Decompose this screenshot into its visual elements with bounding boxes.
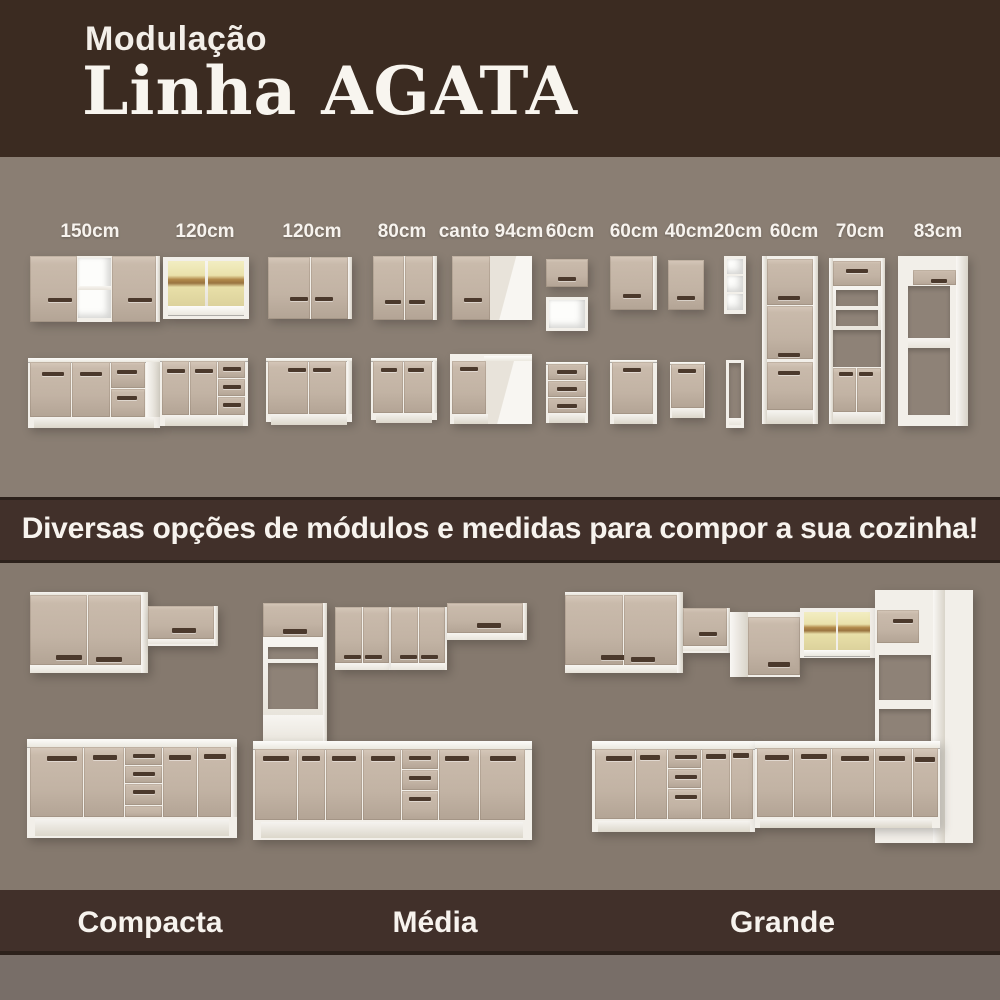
cabinet-door — [767, 306, 813, 359]
cabinet-bottom — [447, 633, 523, 640]
cabinet-door — [373, 256, 404, 320]
media-tall-tower — [263, 603, 327, 745]
module-size-label: 120cm — [155, 221, 255, 243]
drawer-front — [402, 770, 438, 790]
cabinet-bottom-shelf — [168, 306, 244, 315]
cabinet-bottom-shelf — [804, 650, 870, 656]
door-handle — [445, 756, 469, 761]
plinth — [454, 414, 488, 424]
wall-niche-60 — [546, 297, 588, 331]
media-base-counter — [253, 741, 532, 840]
open-bay — [908, 348, 950, 415]
door-handle — [290, 297, 308, 301]
door-handle — [706, 754, 726, 759]
side-panel — [433, 361, 437, 413]
door-handle — [601, 655, 625, 660]
drawer-handle — [557, 387, 577, 391]
cabinet-door — [683, 608, 727, 646]
door-handle — [778, 353, 800, 357]
door-handle — [56, 655, 82, 660]
wall-cabinet-flip-60 — [546, 259, 588, 287]
grande-wall-cabinet-step — [683, 608, 730, 653]
cabinet-door — [268, 257, 310, 319]
side-panel — [523, 603, 527, 640]
drawer-front — [402, 791, 438, 820]
drawer-handle — [557, 370, 577, 374]
cabinet-bottom — [148, 639, 214, 644]
door-handle — [385, 300, 401, 304]
door-handle — [778, 296, 800, 300]
drawer-handle — [133, 772, 155, 776]
door-handle — [169, 755, 191, 760]
kitchen-label-compacta: Compacta — [70, 906, 230, 940]
door-handle — [733, 753, 749, 758]
side-panel — [881, 258, 885, 424]
glass-door — [838, 612, 870, 650]
door-handle — [699, 632, 717, 636]
door-handle — [204, 754, 226, 759]
cabinet-door — [405, 256, 433, 320]
door-handle — [477, 623, 501, 628]
door-handle — [421, 655, 438, 659]
drawer-front — [125, 784, 162, 805]
side-panel — [323, 603, 327, 745]
door-handle — [371, 756, 395, 761]
cabinet-door — [30, 362, 71, 417]
base-cabinet-40 — [670, 362, 705, 418]
cabinet-door — [610, 256, 653, 310]
plinth — [614, 414, 653, 424]
oven-niche — [833, 330, 881, 367]
door-handle — [623, 294, 641, 298]
grande-base-counter-left — [592, 741, 755, 832]
grande-base-counter-right — [755, 741, 940, 828]
open-bay — [908, 286, 950, 338]
door-handle — [460, 367, 478, 371]
module-size-label: 150cm — [40, 221, 140, 243]
wall-cabinet-glass-120 — [163, 257, 249, 319]
corner-panel — [486, 361, 532, 424]
door-handle — [765, 755, 789, 760]
door-handle — [846, 269, 868, 273]
drawer-handle — [117, 396, 137, 400]
drawer-front — [668, 789, 701, 819]
drawer-handle — [675, 795, 697, 799]
wall-cabinet-120 — [268, 257, 352, 319]
oven-niche — [268, 663, 318, 709]
open-niche — [727, 276, 743, 292]
side-panel — [730, 612, 748, 677]
door-handle — [48, 298, 72, 302]
compacta-wall-cabinet — [30, 592, 148, 673]
open-niche — [727, 294, 743, 310]
door-handle — [332, 756, 356, 761]
open-niche — [268, 647, 318, 659]
door-handle — [893, 619, 913, 623]
door-handle — [400, 655, 417, 659]
kitchen-label-grande: Grande — [710, 906, 855, 940]
glass-door — [804, 612, 836, 650]
drawer-front — [125, 806, 162, 817]
countertop — [592, 741, 755, 749]
plinth — [598, 821, 750, 832]
side-panel — [813, 256, 818, 424]
compacta-base-counter — [27, 739, 237, 838]
cross-rail — [908, 338, 950, 348]
compacta-wall-cabinet-step — [148, 606, 218, 646]
plinth — [271, 414, 347, 425]
plinth — [376, 413, 432, 423]
drawer-front — [111, 362, 145, 388]
plinth — [165, 415, 243, 426]
corner-panel — [490, 256, 532, 320]
door-handle — [558, 277, 576, 281]
door-handle — [464, 298, 482, 302]
door-handle — [344, 655, 361, 659]
bottom-strip — [0, 955, 1000, 1000]
grande-glass-wall-cabinet — [800, 608, 875, 658]
cabinet-door — [452, 256, 490, 320]
door-handle — [931, 279, 947, 283]
drawer-handle — [557, 404, 577, 408]
door-handle — [47, 756, 77, 761]
door-handle — [167, 369, 185, 373]
media-wall-cabinet — [391, 607, 447, 670]
side-panel — [146, 362, 160, 417]
countertop — [27, 739, 237, 747]
door-handle — [313, 368, 331, 372]
door-handle — [678, 369, 696, 373]
side-panel — [231, 747, 237, 817]
base-panel — [729, 418, 741, 425]
flip-door — [546, 259, 588, 287]
cabinet-door — [148, 606, 214, 639]
door-handle — [263, 756, 289, 761]
cabinet-door — [112, 256, 156, 322]
door-handle — [640, 755, 660, 760]
wall-shelf-20 — [724, 256, 746, 314]
door-handle — [302, 756, 320, 761]
side-panel — [156, 256, 160, 322]
grande-wall-cabinet — [565, 592, 683, 673]
page-title: Linha AGATA — [82, 52, 578, 130]
wall-cabinet-60 — [610, 256, 657, 310]
plinth — [549, 413, 585, 423]
side-panel — [141, 592, 148, 673]
base-cabinet-120 — [266, 358, 352, 422]
base-cabinet-80 — [371, 358, 437, 420]
countertop — [253, 741, 532, 749]
door-handle — [80, 372, 102, 376]
side-panel — [214, 606, 218, 646]
open-niche — [836, 290, 878, 306]
side-panel — [956, 256, 968, 426]
cabinet-door — [30, 256, 77, 322]
drawer-handle — [675, 755, 697, 759]
cabinet-door — [767, 362, 813, 410]
plinth — [34, 417, 154, 428]
cabinet-door — [702, 749, 730, 819]
cabinet-door — [877, 610, 919, 643]
door-handle — [915, 757, 935, 762]
cabinet-door — [668, 260, 704, 310]
side-panel — [433, 256, 437, 320]
side-panel — [653, 256, 657, 310]
plinth — [833, 412, 881, 424]
base-cabinet-corner-94 — [450, 354, 532, 424]
open-niche — [879, 655, 931, 700]
door-handle — [93, 755, 117, 760]
door-handle — [409, 300, 425, 304]
drawer-handle — [223, 385, 241, 389]
cabinet-bottom — [30, 665, 141, 673]
door-handle — [801, 754, 827, 759]
cabinet-door — [624, 595, 677, 665]
plinth — [767, 411, 813, 424]
cabinet-door — [311, 257, 348, 319]
door-handle — [839, 372, 853, 376]
kitchen-label-media: Média — [375, 906, 495, 940]
cabinet-door — [731, 749, 753, 819]
door-handle — [859, 372, 873, 376]
drawer-handle — [409, 756, 431, 760]
door-handle — [315, 297, 333, 301]
door-handle — [172, 628, 196, 633]
drawer-handle — [117, 370, 137, 374]
wall-cabinet-40 — [668, 260, 704, 310]
side-panel — [347, 361, 352, 414]
door-handle — [768, 662, 790, 667]
base-cabinet-drawers-60 — [546, 362, 588, 423]
product-infographic: Modulação Linha AGATA Diversas opções de… — [0, 0, 1000, 1000]
door-handle — [381, 368, 397, 372]
cabinet-bottom — [335, 663, 389, 670]
drawer-front — [111, 389, 145, 417]
open-niche — [727, 259, 743, 274]
base-cabinet-60 — [610, 360, 657, 424]
plinth — [261, 822, 523, 838]
tall-fridge-surround-83 — [898, 256, 968, 426]
grande-corner-wall-cabinet — [730, 612, 800, 677]
door-handle — [128, 298, 152, 302]
plinth — [760, 819, 932, 828]
door-handle — [195, 369, 213, 373]
door-handle — [879, 756, 905, 761]
door-handle — [283, 629, 307, 634]
cabinet-door — [72, 362, 110, 417]
tall-pantry-60 — [762, 256, 818, 424]
wall-cabinet-80 — [373, 256, 437, 320]
plinth — [35, 819, 229, 836]
drawer-handle — [133, 754, 155, 758]
media-wall-cabinet-step — [447, 603, 527, 640]
banner-text: Diversas opções de módulos e medidas par… — [0, 512, 1000, 546]
drawer-handle — [675, 775, 697, 779]
door-handle — [841, 756, 869, 761]
base-cabinet-120-drawers — [160, 358, 248, 426]
plinth — [672, 408, 703, 418]
cabinet-door — [88, 595, 141, 665]
open-niche — [729, 363, 741, 418]
door-handle — [623, 368, 641, 372]
door-handle — [365, 655, 382, 659]
drawer-handle — [133, 790, 155, 794]
door-handle — [96, 657, 122, 662]
open-niche — [879, 709, 931, 743]
wall-cabinet-corner-94 — [452, 256, 532, 320]
drawer-handle — [409, 776, 431, 780]
base-cabinet-150 — [28, 358, 160, 428]
tall-oven-tower-70 — [829, 258, 885, 424]
side-panel — [348, 257, 352, 319]
door-handle — [677, 296, 695, 300]
door-handle — [408, 368, 424, 372]
door-handle — [42, 372, 64, 376]
door-handle — [288, 368, 306, 372]
drawer-handle — [409, 797, 431, 801]
drawer-handle — [223, 403, 241, 407]
countertop — [755, 741, 940, 748]
glass-door-divider — [205, 261, 208, 306]
cabinet-bottom — [565, 665, 677, 673]
drawer-handle — [223, 367, 241, 371]
niche-shelf — [78, 286, 111, 290]
door-handle — [778, 371, 800, 375]
door-handle — [606, 756, 632, 761]
cabinet-door — [447, 603, 523, 633]
module-size-label: 83cm — [888, 221, 988, 243]
cabinet-bottom — [683, 646, 727, 651]
base-shelf-20 — [726, 360, 744, 428]
cabinet-door — [833, 261, 881, 286]
wall-cabinet-150 — [30, 256, 160, 322]
open-niche — [836, 310, 878, 326]
open-niche — [549, 300, 585, 328]
door-handle — [631, 657, 655, 662]
module-size-label: 120cm — [262, 221, 362, 243]
door-handle — [490, 756, 516, 761]
cabinet-bottom — [391, 663, 445, 670]
media-wall-cabinet — [335, 607, 391, 670]
